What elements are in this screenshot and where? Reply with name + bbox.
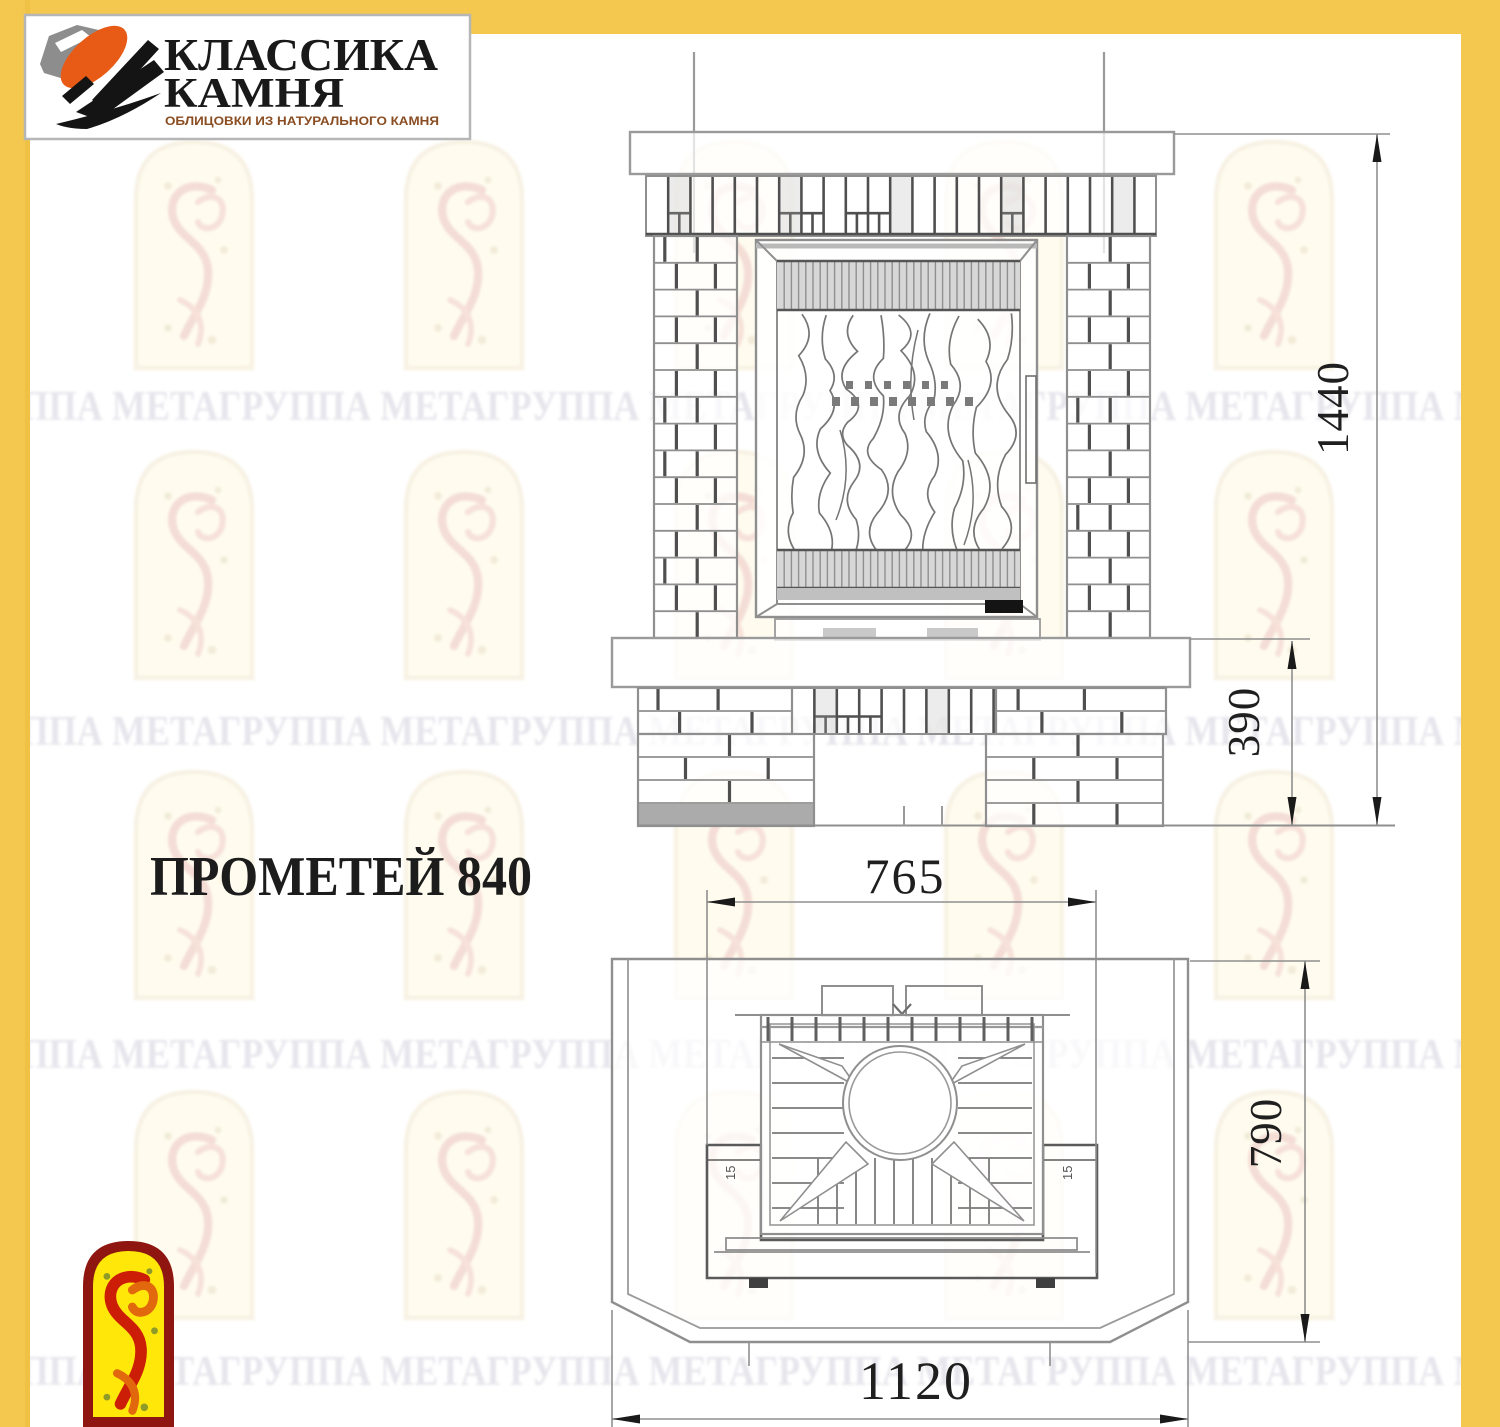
svg-text:1440: 1440 — [1308, 361, 1358, 455]
svg-text:ГРУППА МЕТАГРУППА МЕТАГРУППА М: ГРУППА МЕТАГРУППА МЕТАГРУППА МЕТАГРУППА … — [0, 1349, 1500, 1395]
svg-text:1120: 1120 — [859, 1351, 973, 1411]
svg-text:КАМНЯ: КАМНЯ — [164, 71, 344, 117]
svg-text:390: 390 — [1219, 687, 1269, 758]
svg-text:ОБЛИЦОВКИ ИЗ НАТУРАЛЬНОГО КАМН: ОБЛИЦОВКИ ИЗ НАТУРАЛЬНОГО КАМНЯ — [165, 116, 439, 128]
svg-text:765: 765 — [865, 848, 946, 904]
svg-text:15: 15 — [1060, 1166, 1075, 1180]
svg-text:ГРУППА МЕТАГРУППА МЕТАГРУППА М: ГРУППА МЕТАГРУППА МЕТАГРУППА МЕТАГРУППА … — [0, 384, 1500, 430]
svg-text:ПРОМЕТЕЙ 840: ПРОМЕТЕЙ 840 — [150, 846, 532, 908]
svg-text:790: 790 — [1241, 1098, 1291, 1169]
svg-text:15: 15 — [723, 1166, 738, 1180]
